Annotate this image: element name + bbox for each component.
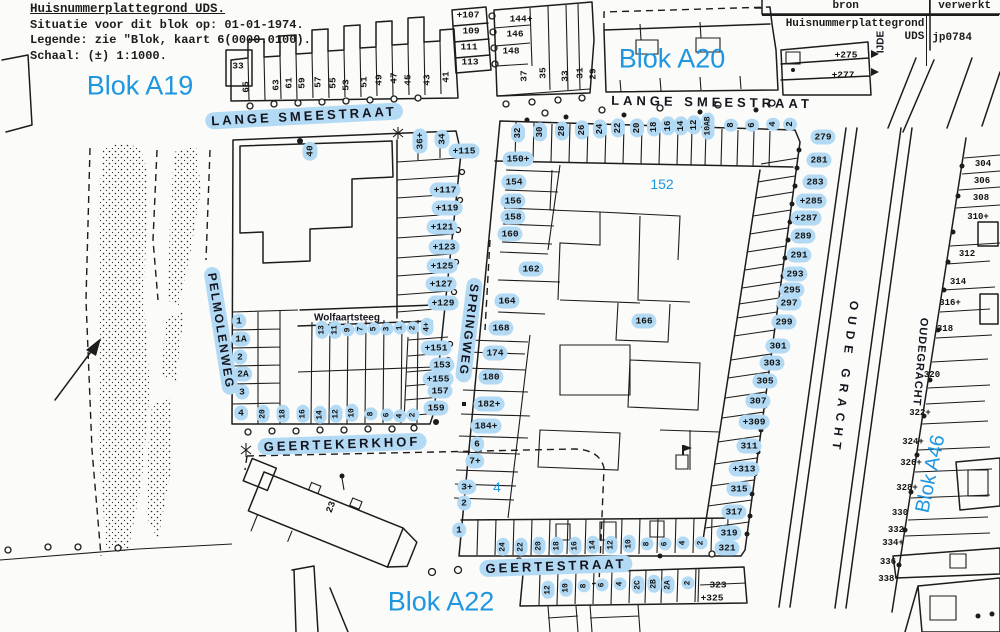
map-linework: [0, 0, 1000, 632]
legend-situatie: Situatie voor dit blok op: 01-01-1974.: [30, 18, 311, 34]
source-table: bron verwerkt Huisnummerplattegrond UDS …: [762, 0, 999, 50]
source-verwerkt-value: jp0784: [926, 16, 999, 66]
source-bron-value: Huisnummerplattegrond UDS: [762, 16, 926, 66]
legend-legende: Legende: zie "Blok, kaart 6(0000.0100).: [30, 33, 311, 49]
huisnummerplattegrond-map-page: Huisnummerplattegrond UDS. Situatie voor…: [0, 0, 1000, 632]
source-col-bron: bron: [762, 0, 929, 14]
legend-schaal: Schaal: (±) 1:1000.: [30, 49, 311, 65]
legend-block: Huisnummerplattegrond UDS. Situatie voor…: [30, 2, 311, 64]
source-col-verwerkt: verwerkt: [929, 0, 999, 14]
legend-title: Huisnummerplattegrond UDS.: [30, 2, 311, 18]
